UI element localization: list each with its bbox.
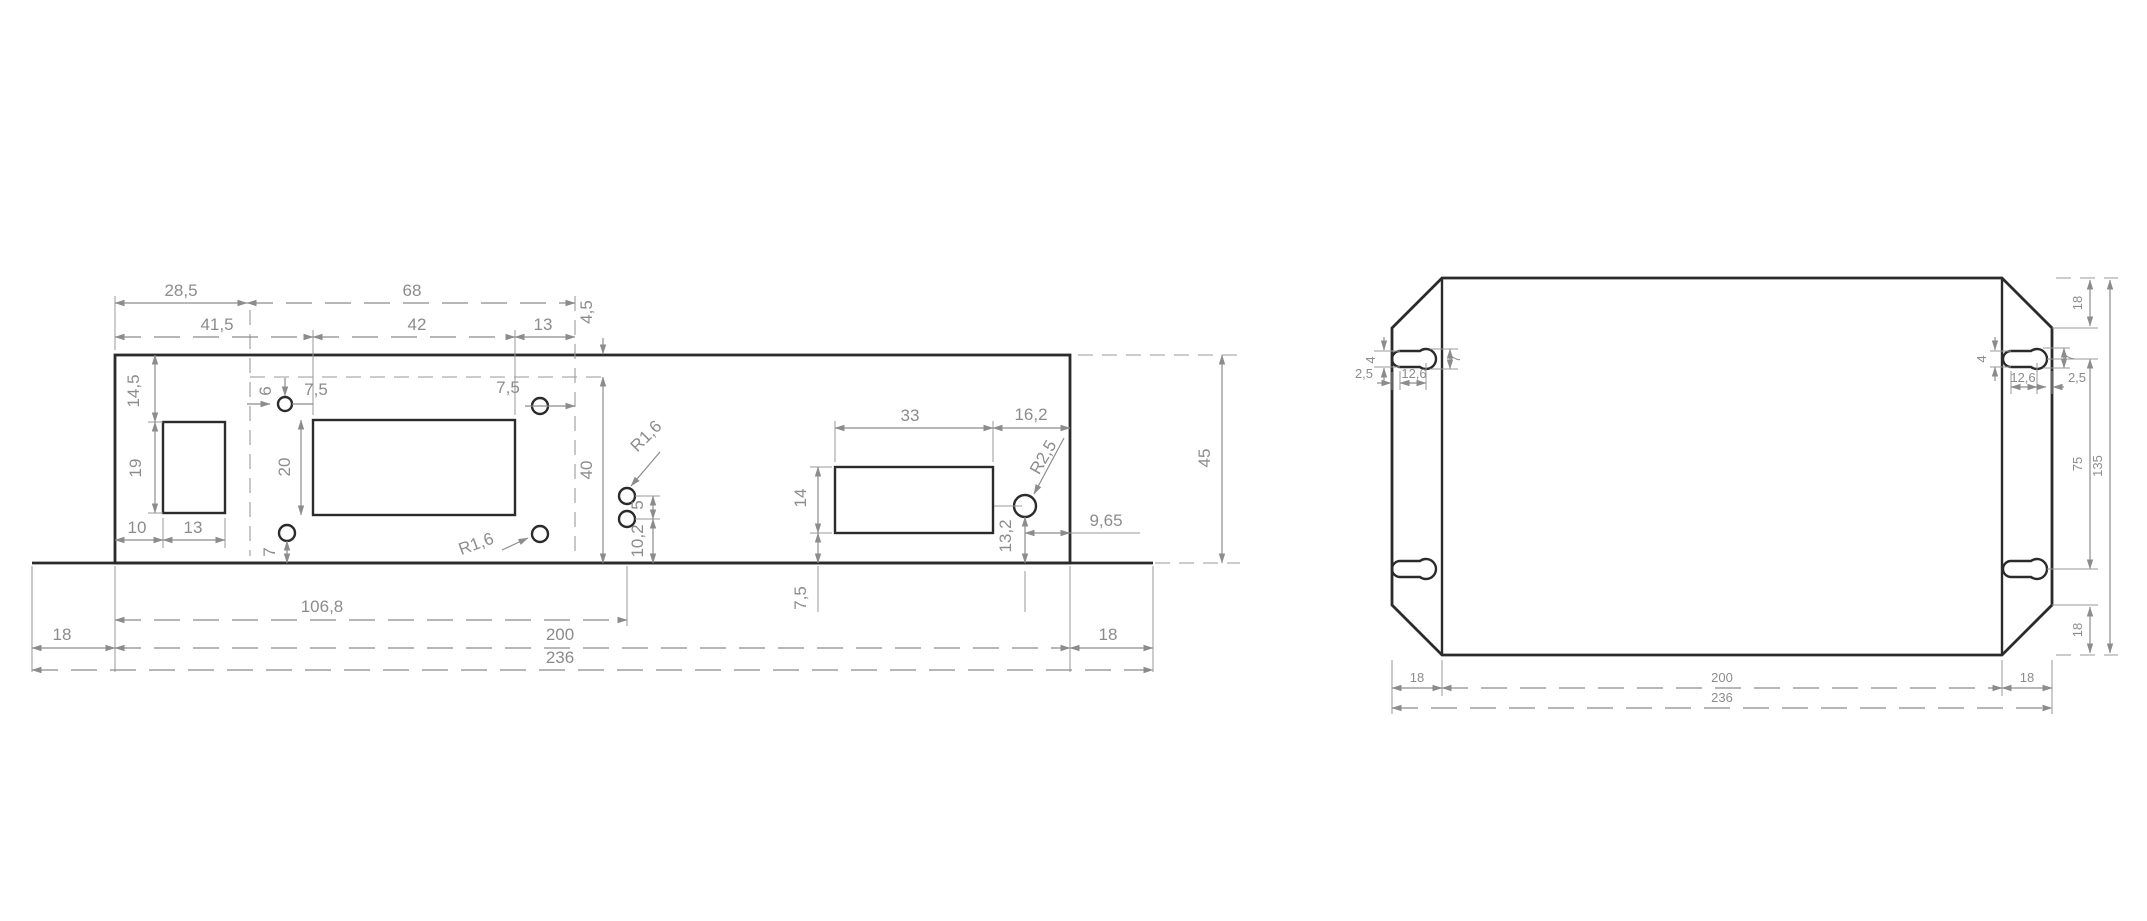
dim-label: 7,5 [304, 380, 328, 399]
dim-label: 135 [2090, 455, 2105, 477]
dim-label: 18 [2020, 670, 2034, 685]
dim-label: 236 [546, 648, 574, 667]
dim-label: 28,5 [164, 281, 197, 300]
dim-label: 2,5 [1355, 366, 1373, 381]
dim-label: 7 [2062, 354, 2077, 361]
front-extension-lines [32, 296, 1153, 672]
keyhole-slot [2003, 559, 2047, 579]
keyhole-slot [1392, 559, 1436, 579]
dim-label: 75 [2070, 457, 2085, 471]
dim-label: 236 [1711, 690, 1733, 705]
dim-label: 4 [1974, 355, 1989, 362]
dim-label: 2,5 [2068, 370, 2086, 385]
mounting-hole [532, 526, 548, 542]
connector-cutout [835, 467, 993, 533]
dim-label: 7,5 [496, 378, 520, 397]
display-cutout [313, 420, 515, 515]
plan-dimension-labels: 4 2,5 12,6 7 4 12,6 2,5 7 18 75 135 18 1… [1355, 296, 2105, 705]
dim-label: 10,2 [628, 524, 647, 557]
dim-label: 10 [128, 518, 147, 537]
plan-extension-lines [1374, 278, 2118, 714]
dim-label: 18 [2070, 623, 2085, 637]
technical-drawing-canvas: 28,5 41,5 68 42 13 4,5 14,5 19 10 13 6 7… [0, 0, 2147, 921]
radius-label: R1,6 [627, 417, 666, 456]
dim-label: 14 [791, 489, 810, 508]
dim-label: 7 [260, 547, 279, 556]
keyhole-slot [2003, 349, 2047, 369]
dim-label: 7,5 [791, 586, 810, 610]
dim-label: 13 [534, 315, 553, 334]
dim-label: 12,6 [2010, 370, 2035, 385]
dim-label: 200 [1711, 670, 1733, 685]
dim-label: 9,65 [1089, 511, 1122, 530]
dim-label: 13 [184, 518, 203, 537]
dim-label: 18 [1099, 625, 1118, 644]
dim-label: 16,2 [1014, 405, 1047, 424]
dim-label: 12,6 [1401, 366, 1426, 381]
radius-label: R1,6 [456, 529, 496, 559]
dim-label: 4,5 [577, 300, 596, 324]
front-panel-view: 28,5 41,5 68 42 13 4,5 14,5 19 10 13 6 7… [32, 281, 1240, 672]
dim-label: 20 [275, 458, 294, 477]
dim-label: 33 [901, 406, 920, 425]
dim-label: 68 [403, 281, 422, 300]
plate-outline [1392, 278, 2052, 655]
technical-drawing: 28,5 41,5 68 42 13 4,5 14,5 19 10 13 6 7… [0, 0, 2147, 921]
plan-view: 4 2,5 12,6 7 4 12,6 2,5 7 18 75 135 18 1… [1355, 278, 2118, 714]
dim-label: 6 [256, 386, 275, 395]
mounting-hole [279, 525, 295, 541]
plan-dimension-lines [1377, 280, 2110, 708]
dim-label: 18 [53, 625, 72, 644]
dim-label: 45 [1195, 449, 1214, 468]
dim-label: 106,8 [301, 597, 344, 616]
front-dimension-labels: 28,5 41,5 68 42 13 4,5 14,5 19 10 13 6 7… [53, 281, 1214, 667]
dim-label: 200 [546, 625, 574, 644]
panel-outline [115, 355, 1070, 563]
dim-label: 41,5 [200, 315, 233, 334]
left-cutout [163, 422, 225, 513]
dim-label: 42 [408, 315, 427, 334]
dim-label: 4 [1363, 356, 1378, 363]
dim-label: 7 [1448, 355, 1463, 362]
dim-label: 13,2 [996, 519, 1015, 552]
dim-label: 5 [628, 500, 647, 509]
dim-label: 40 [577, 461, 596, 480]
dim-label: 18 [2070, 296, 2085, 310]
mounting-hole [278, 397, 292, 411]
radius-label: R2,5 [1026, 437, 1060, 478]
dim-label: 14,5 [124, 374, 143, 407]
dim-label: 19 [126, 459, 145, 478]
dim-label: 18 [1410, 670, 1424, 685]
